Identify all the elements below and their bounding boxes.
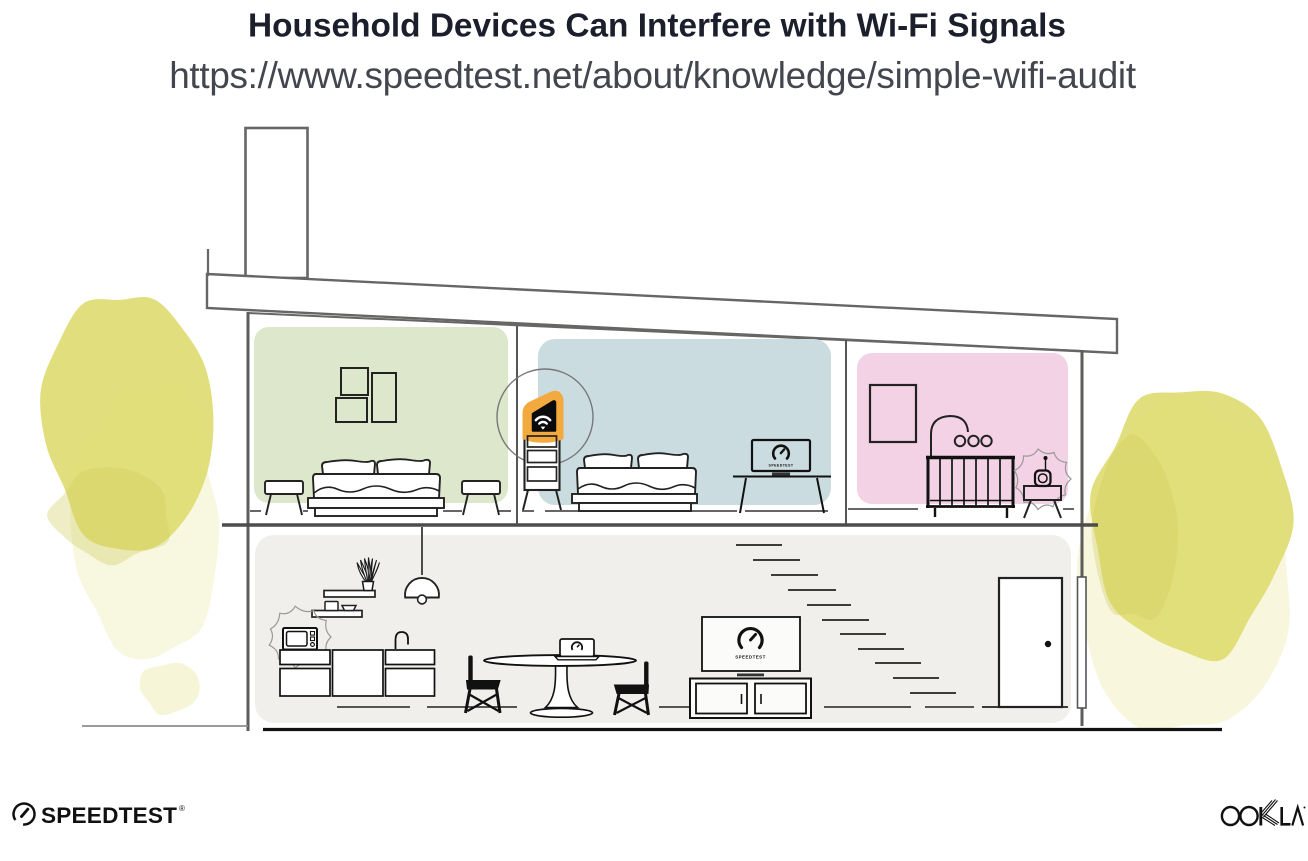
svg-text:SPEEDTEST: SPEEDTEST [769, 464, 794, 468]
svg-text:®: ® [179, 804, 185, 813]
svg-text:Household Devices Can Interfer: Household Devices Can Interfere with Wi-… [248, 8, 1066, 45]
svg-text:SPEEDTEST: SPEEDTEST [41, 803, 177, 828]
svg-text:https://www.speedtest.net/abou: https://www.speedtest.net/about/knowledg… [169, 55, 1136, 96]
svg-text:SPEEDTEST: SPEEDTEST [735, 655, 766, 660]
